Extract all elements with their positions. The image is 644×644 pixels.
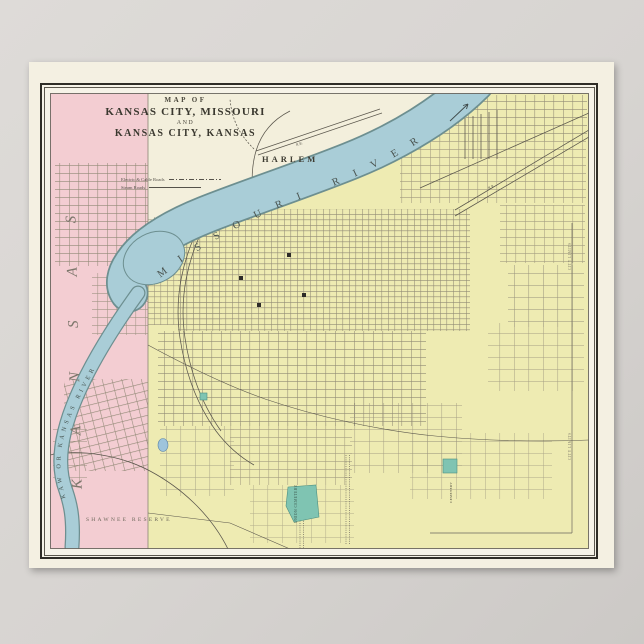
union-cemetery-label: UNION CEMETERY (294, 489, 298, 523)
screenshot-canvas: MISSOURI RIVER KAW OR KANSAS RIVER KANSA… (0, 0, 644, 644)
legend-steam-line-sample (149, 187, 201, 188)
legend-steam-row: Steam Roads (121, 183, 221, 191)
map-legend: Electric & Cable Roads Steam Roads (121, 175, 221, 191)
pond (158, 439, 168, 452)
legend-electric-row: Electric & Cable Roads (121, 175, 221, 183)
legend-electric-line-sample (169, 179, 221, 180)
title-conjunction: AND (103, 120, 268, 126)
legend-steam-label: Steam Roads (121, 185, 145, 190)
title-city2: KANSAS CITY, KANSAS (103, 128, 268, 139)
cemetery-small-label: CEMETERY (449, 479, 453, 503)
shawnee-reserve-label: SHAWNEE RESERVE (86, 517, 172, 523)
city-limits-south-label: CITY LIMITS (568, 430, 572, 460)
title-prefix: MAP OF (103, 96, 268, 104)
map-canvas: MISSOURI RIVER KAW OR KANSAS RIVER KANSA… (50, 93, 589, 549)
city-limits-east-label: CITY LIMITS (568, 240, 572, 270)
harlem-label: HARLEM (262, 154, 318, 164)
title-city1: KANSAS CITY, MISSOURI (103, 106, 268, 118)
legend-electric-label: Electric & Cable Roads (121, 177, 165, 182)
map-title-block: MAP OF KANSAS CITY, MISSOURI AND KANSAS … (103, 96, 268, 139)
